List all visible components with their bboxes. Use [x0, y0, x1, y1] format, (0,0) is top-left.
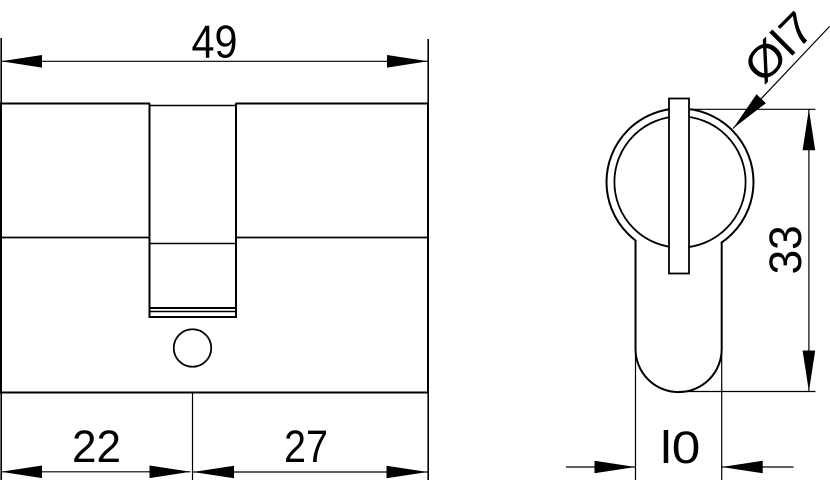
svg-text:49: 49	[192, 16, 238, 68]
svg-text:33: 33	[760, 225, 811, 274]
svg-text:l0: l0	[660, 422, 700, 473]
svg-text:27: 27	[284, 421, 328, 472]
svg-text:22: 22	[72, 421, 121, 472]
